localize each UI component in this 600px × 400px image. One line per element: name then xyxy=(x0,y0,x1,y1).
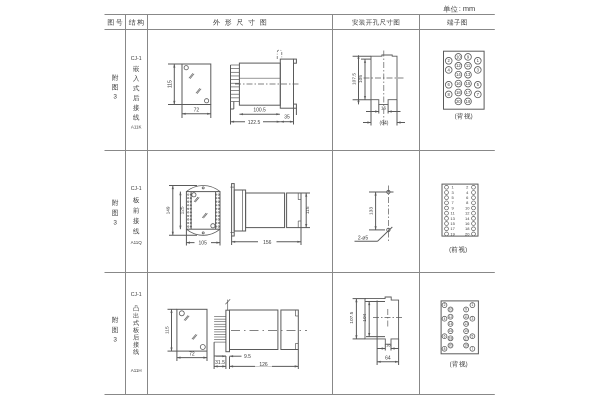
svg-text:19: 19 xyxy=(466,99,471,104)
svg-text:5: 5 xyxy=(471,334,473,338)
svg-text:14: 14 xyxy=(449,322,453,326)
svg-text:115: 115 xyxy=(167,80,173,88)
svg-text:15: 15 xyxy=(466,81,471,86)
svg-text:(: ( xyxy=(449,247,451,253)
svg-text:20: 20 xyxy=(465,231,470,236)
svg-text:10: 10 xyxy=(456,54,461,59)
svg-text:9: 9 xyxy=(465,308,467,312)
svg-text:5: 5 xyxy=(477,82,480,87)
svg-text:156: 156 xyxy=(263,240,272,246)
svg-text:CJ-1: CJ-1 xyxy=(131,56,142,62)
svg-text:17: 17 xyxy=(464,336,468,340)
svg-text:17: 17 xyxy=(466,90,471,95)
svg-text:8: 8 xyxy=(444,347,446,351)
svg-text:2: 2 xyxy=(444,303,446,307)
svg-text:CJ-1: CJ-1 xyxy=(131,186,142,192)
svg-text:9: 9 xyxy=(467,54,470,59)
svg-text:126: 126 xyxy=(259,362,268,368)
svg-text:105: 105 xyxy=(199,240,208,246)
svg-text:122.5: 122.5 xyxy=(248,120,261,126)
svg-text:13: 13 xyxy=(466,72,471,77)
svg-text:): ) xyxy=(466,362,468,368)
svg-text:1: 1 xyxy=(471,303,473,307)
svg-text:A11Q: A11Q xyxy=(131,240,143,245)
svg-text:133: 133 xyxy=(369,207,375,215)
svg-text:7: 7 xyxy=(477,92,480,97)
svg-text:14: 14 xyxy=(456,72,461,77)
svg-text:7: 7 xyxy=(471,347,473,351)
svg-text:10: 10 xyxy=(449,308,453,312)
svg-text:13: 13 xyxy=(464,322,468,326)
svg-text:100.5: 100.5 xyxy=(253,108,266,114)
svg-text:(: ( xyxy=(455,114,457,120)
svg-text:2-ø5: 2-ø5 xyxy=(358,236,369,242)
svg-text:16: 16 xyxy=(456,81,461,86)
svg-text:6: 6 xyxy=(448,82,451,87)
svg-text:20: 20 xyxy=(449,344,453,348)
svg-text:11: 11 xyxy=(466,63,471,68)
svg-text:15: 15 xyxy=(464,329,468,333)
svg-text:11: 11 xyxy=(464,315,468,319)
svg-text:18: 18 xyxy=(456,90,461,95)
svg-text:18: 18 xyxy=(449,336,453,340)
svg-text:2: 2 xyxy=(448,58,451,63)
svg-text:20: 20 xyxy=(456,99,461,104)
svg-text:3: 3 xyxy=(471,317,473,321)
svg-text:115: 115 xyxy=(305,206,311,214)
svg-text:(: ( xyxy=(450,362,452,368)
svg-text:): ) xyxy=(471,114,473,120)
svg-text:8: 8 xyxy=(448,92,451,97)
svg-text:104: 104 xyxy=(362,313,368,321)
svg-text:6: 6 xyxy=(444,334,446,338)
svg-text:A11H: A11H xyxy=(131,368,142,373)
svg-text:3: 3 xyxy=(113,337,117,344)
svg-text:72: 72 xyxy=(189,352,195,358)
svg-text:A11K: A11K xyxy=(131,125,142,130)
svg-text:CJ-1: CJ-1 xyxy=(131,292,142,298)
svg-text:(64): (64) xyxy=(380,121,389,127)
svg-text:105: 105 xyxy=(358,75,364,83)
svg-text:107.5: 107.5 xyxy=(349,311,355,323)
svg-text:): ) xyxy=(465,247,467,253)
svg-text:3: 3 xyxy=(477,67,480,72)
svg-text:19: 19 xyxy=(464,344,468,348)
svg-text:1: 1 xyxy=(477,58,480,63)
svg-text:16: 16 xyxy=(386,343,391,348)
svg-text:12: 12 xyxy=(456,63,461,68)
svg-text:16: 16 xyxy=(449,329,453,333)
svg-text:3: 3 xyxy=(113,94,117,101)
svg-text::: : xyxy=(459,6,461,13)
svg-text:4: 4 xyxy=(448,67,451,72)
svg-text:31.5: 31.5 xyxy=(215,360,225,366)
svg-text:115: 115 xyxy=(165,326,171,334)
svg-text:mm: mm xyxy=(463,4,475,13)
svg-text:149: 149 xyxy=(166,206,172,214)
svg-text:35: 35 xyxy=(284,115,290,121)
svg-text:107.5: 107.5 xyxy=(351,73,357,85)
svg-text:125: 125 xyxy=(179,206,185,214)
svg-text:12: 12 xyxy=(449,315,453,319)
svg-text:19: 19 xyxy=(450,231,455,236)
svg-text:16: 16 xyxy=(381,105,387,110)
svg-text:9.5: 9.5 xyxy=(244,354,251,360)
svg-text:3: 3 xyxy=(113,220,117,227)
svg-text:64: 64 xyxy=(385,356,391,362)
svg-text:4: 4 xyxy=(444,317,446,321)
svg-text:72: 72 xyxy=(194,108,200,114)
